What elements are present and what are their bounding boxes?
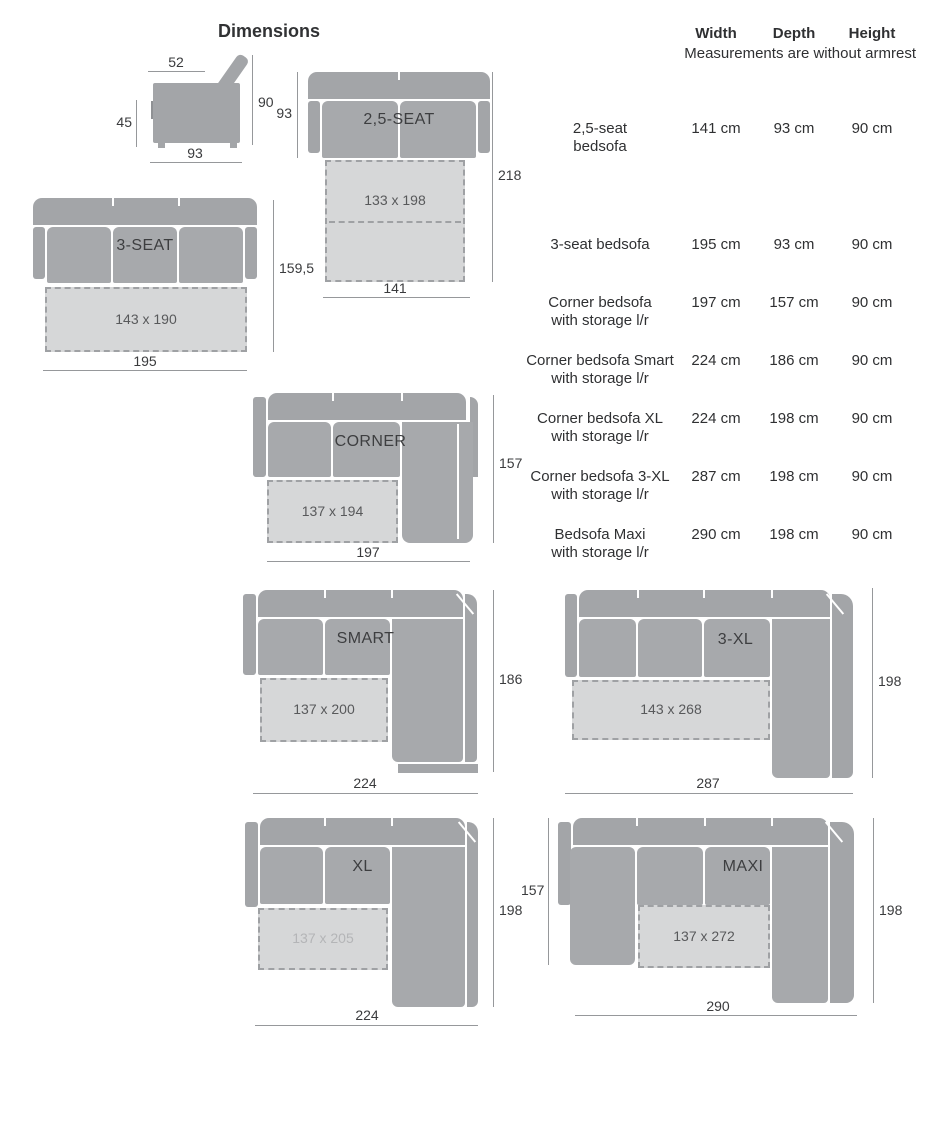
row-height: 90 cm xyxy=(840,120,904,137)
sofa-back xyxy=(260,818,465,845)
row-height: 90 cm xyxy=(840,294,904,311)
seat-cushion xyxy=(322,101,398,158)
armrest-right xyxy=(832,594,853,778)
dim-seat-height: 45 xyxy=(115,114,132,130)
mattress-size: 137 x 200 xyxy=(262,701,386,717)
seat-2-5-diagram: 2,5-SEAT 133 x 198 93 218 141 xyxy=(295,65,525,310)
dim-seat-depth: 52 xyxy=(165,54,187,70)
row-height: 90 cm xyxy=(840,236,904,253)
row-depth: 157 cm xyxy=(762,294,826,311)
table-row: Corner bedsofa Smart with storage l/r xyxy=(500,352,700,388)
back-notch xyxy=(398,72,400,80)
dim-left-depth: 157 xyxy=(521,882,543,898)
dim-line xyxy=(43,370,247,371)
dim-total-height: 90 xyxy=(258,94,274,110)
table-note: Measurements are without armrest xyxy=(560,45,916,62)
dim-width: 287 xyxy=(683,775,733,791)
dim-width: 141 xyxy=(370,280,420,296)
back-notch xyxy=(112,198,114,206)
row-depth: 93 cm xyxy=(762,236,826,253)
seat-cushion xyxy=(400,101,476,158)
dim-line xyxy=(872,588,873,778)
mattress: 137 x 194 xyxy=(267,480,398,543)
page-title: Dimensions xyxy=(218,21,320,42)
dim-line xyxy=(493,818,494,1007)
dim-line xyxy=(548,818,549,965)
sofa-model-label: XL xyxy=(260,858,465,876)
back-notch xyxy=(771,590,773,598)
row-depth: 198 cm xyxy=(762,526,826,543)
row-name-line1: 2,5-seat xyxy=(500,120,700,138)
mattress-size: 137 x 272 xyxy=(640,928,768,944)
sofa-back xyxy=(573,818,828,845)
sofa-foot xyxy=(230,143,237,148)
row-width: 224 cm xyxy=(684,410,748,427)
armrest-right xyxy=(830,822,854,1003)
row-height: 90 cm xyxy=(840,352,904,369)
dim-line xyxy=(493,395,494,543)
side-handle xyxy=(151,101,153,119)
armrest-left xyxy=(243,594,256,675)
armrest-left xyxy=(245,822,258,907)
mattress-fold-line xyxy=(329,221,461,223)
dim-width: 197 xyxy=(343,544,393,560)
dim-line xyxy=(873,818,874,1003)
dim-total-depth: 157 xyxy=(499,455,522,471)
dim-depth: 93 xyxy=(175,145,215,161)
back-notch xyxy=(401,393,403,401)
table-row: 2,5-seat bedsofa xyxy=(500,120,700,156)
dim-line xyxy=(565,793,853,794)
mattress: 137 x 205 xyxy=(258,908,388,970)
armrest-right xyxy=(465,594,477,762)
row-name-line2: with storage l/r xyxy=(500,370,700,388)
row-width: 195 cm xyxy=(684,236,748,253)
table-row: 3-seat bedsofa xyxy=(500,236,700,254)
dim-line xyxy=(492,72,493,282)
back-notch xyxy=(391,590,393,598)
row-depth: 93 cm xyxy=(762,120,826,137)
side-view-diagram: 52 45 90 93 xyxy=(115,50,280,175)
dim-line xyxy=(253,793,478,794)
back-notch xyxy=(178,198,180,206)
dim-width: 195 xyxy=(120,353,170,369)
dim-width: 290 xyxy=(693,998,743,1014)
dim-total-depth: 198 xyxy=(878,673,901,689)
seat-cushion xyxy=(179,227,243,283)
dim-total-depth: 198 xyxy=(499,902,522,918)
armrest-left xyxy=(565,594,577,677)
mattress-size: 137 x 194 xyxy=(269,503,396,519)
seat-cushion xyxy=(113,227,177,283)
mattress: 143 x 190 xyxy=(45,287,247,352)
sofa-model-label: 3-XL xyxy=(618,631,853,649)
dimensions-page: Dimensions Width Depth Height Measuremen… xyxy=(0,0,950,1140)
row-height: 90 cm xyxy=(840,526,904,543)
row-name-line1: Corner bedsofa Smart xyxy=(500,352,700,370)
row-depth: 198 cm xyxy=(762,410,826,427)
dim-line xyxy=(252,55,253,145)
seat-cushion xyxy=(637,847,703,905)
seat-cushion xyxy=(47,227,111,283)
storage-bar xyxy=(398,764,478,773)
sofa-back xyxy=(268,393,466,420)
mattress: 137 x 272 xyxy=(638,905,770,968)
column-header-width: Width xyxy=(684,25,748,42)
row-width: 290 cm xyxy=(684,526,748,543)
seat-cushion xyxy=(705,847,770,905)
mattress-size: 133 x 198 xyxy=(327,192,463,208)
seat-3-diagram: 3-SEAT 143 x 190 159,5 195 xyxy=(33,190,323,380)
row-name-line2: with storage l/r xyxy=(500,312,700,330)
row-height: 90 cm xyxy=(840,468,904,485)
smart-diagram: SMART 137 x 200 186 224 xyxy=(243,585,533,800)
row-width: 141 cm xyxy=(684,120,748,137)
mattress-size: 143 x 190 xyxy=(47,311,245,327)
dim-line xyxy=(150,162,242,163)
dim-width: 224 xyxy=(342,1007,392,1023)
back-notch xyxy=(391,818,393,826)
back-notch xyxy=(771,818,773,826)
xl3-diagram: 3-XL 143 x 268 198 287 xyxy=(558,585,903,800)
back-notch xyxy=(324,590,326,598)
dim-line xyxy=(273,200,274,352)
xl-diagram: XL 137 x 205 198 224 xyxy=(245,810,535,1030)
maxi-diagram: 157 MAXI 137 x 272 198 290 xyxy=(548,805,913,1030)
sofa-model-label: MAXI xyxy=(638,858,848,876)
dim-width: 224 xyxy=(340,775,390,791)
mattress-size: 143 x 268 xyxy=(574,701,768,717)
row-depth: 198 cm xyxy=(762,468,826,485)
mattress: 143 x 268 xyxy=(572,680,770,740)
row-name-line2: bedsofa xyxy=(500,138,700,156)
sofa-model-label: SMART xyxy=(258,630,473,648)
dim-total-depth: 218 xyxy=(498,167,521,183)
corner-diagram: CORNER 137 x 194 157 197 xyxy=(253,388,543,578)
sofa-model-label: 3-SEAT xyxy=(33,237,257,255)
column-header-height: Height xyxy=(840,25,904,42)
column-header-depth: Depth xyxy=(762,25,826,42)
dim-sofa-depth: 93 xyxy=(274,105,292,121)
back-notch xyxy=(324,818,326,826)
table-row: Corner bedsofa with storage l/r xyxy=(500,294,700,330)
sofa-back xyxy=(258,590,463,617)
row-name-line1: Corner bedsofa xyxy=(500,294,700,312)
dim-line xyxy=(575,1015,857,1016)
left-extension xyxy=(570,847,635,965)
back-notch xyxy=(636,818,638,826)
back-notch xyxy=(704,818,706,826)
dim-line xyxy=(297,72,298,158)
armrest-left xyxy=(253,397,266,477)
row-width: 197 cm xyxy=(684,294,748,311)
dim-total-depth: 198 xyxy=(879,902,902,918)
mattress-size: 137 x 205 xyxy=(260,930,386,946)
row-height: 90 cm xyxy=(840,410,904,427)
back-notch xyxy=(332,393,334,401)
mattress: 137 x 200 xyxy=(260,678,388,742)
dim-total-depth: 159,5 xyxy=(279,260,314,276)
dim-line xyxy=(136,100,137,147)
row-depth: 186 cm xyxy=(762,352,826,369)
dim-line xyxy=(267,561,470,562)
sofa-body-side xyxy=(153,83,240,143)
sofa-model-label: CORNER xyxy=(268,433,473,451)
sofa-back xyxy=(33,198,257,225)
dim-line xyxy=(323,297,470,298)
mattress: 133 x 198 xyxy=(325,160,465,282)
armrest-right xyxy=(467,822,478,1007)
dim-total-depth: 186 xyxy=(499,671,522,687)
dim-line xyxy=(148,71,205,72)
sofa-foot xyxy=(158,143,165,148)
dim-line xyxy=(493,590,494,772)
back-notch xyxy=(637,590,639,598)
dim-line xyxy=(255,1025,478,1026)
back-notch xyxy=(703,590,705,598)
sofa-model-label: 2,5-SEAT xyxy=(308,111,490,129)
row-width: 224 cm xyxy=(684,352,748,369)
row-name-line1: 3-seat bedsofa xyxy=(500,236,700,254)
row-width: 287 cm xyxy=(684,468,748,485)
